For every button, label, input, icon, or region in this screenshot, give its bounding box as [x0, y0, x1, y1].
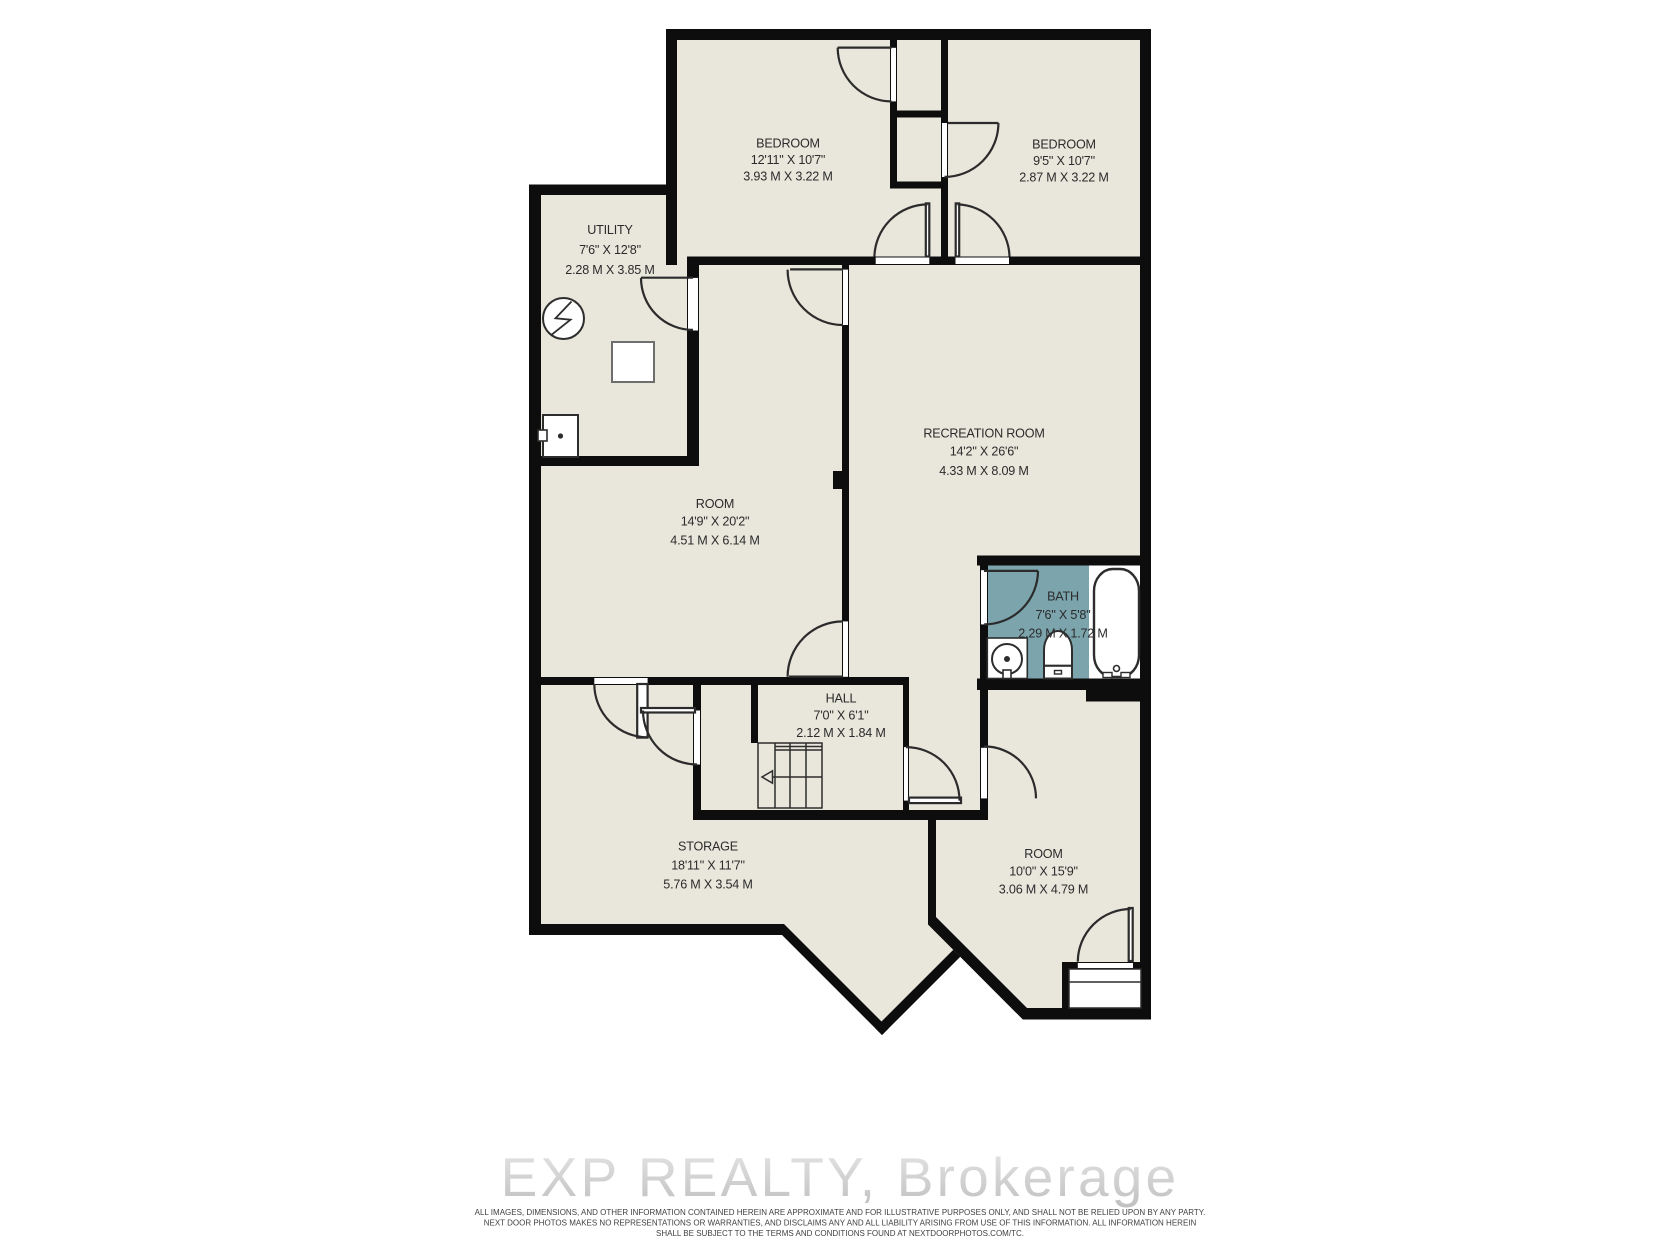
svg-text:RECREATION ROOM: RECREATION ROOM — [923, 427, 1044, 441]
svg-text:BEDROOM: BEDROOM — [756, 137, 820, 151]
svg-text:EXP REALTY, Brokerage: EXP REALTY, Brokerage — [501, 1146, 1180, 1208]
svg-text:ALL IMAGES, DIMENSIONS, AND OT: ALL IMAGES, DIMENSIONS, AND OTHER INFORM… — [475, 1208, 1206, 1217]
svg-text:7'6" X 5'8": 7'6" X 5'8" — [1036, 608, 1091, 622]
svg-text:4.33 M X 8.09 M: 4.33 M X 8.09 M — [939, 464, 1028, 478]
svg-text:HALL: HALL — [826, 692, 857, 706]
svg-text:UTILITY: UTILITY — [587, 223, 633, 237]
svg-text:2.28 M X 3.85 M: 2.28 M X 3.85 M — [565, 263, 654, 277]
svg-text:3.06 M X 4.79 M: 3.06 M X 4.79 M — [999, 883, 1088, 897]
svg-text:10'0" X 15'9": 10'0" X 15'9" — [1009, 864, 1078, 878]
svg-text:NEXT DOOR PHOTOS MAKES NO REPR: NEXT DOOR PHOTOS MAKES NO REPRESENTATION… — [484, 1218, 1197, 1227]
svg-text:9'5" X 10'7": 9'5" X 10'7" — [1033, 154, 1095, 168]
svg-text:18'11" X 11'7": 18'11" X 11'7" — [671, 859, 745, 873]
svg-text:2.12 M X 1.84 M: 2.12 M X 1.84 M — [796, 726, 885, 740]
svg-text:12'11" X 10'7": 12'11" X 10'7" — [751, 153, 825, 167]
svg-text:BEDROOM: BEDROOM — [1032, 138, 1096, 152]
svg-text:4.51 M X 6.14 M: 4.51 M X 6.14 M — [670, 534, 759, 548]
svg-text:ROOM: ROOM — [1024, 847, 1062, 861]
svg-text:5.76 M X 3.54 M: 5.76 M X 3.54 M — [663, 878, 752, 892]
svg-text:7'0" X 6'1": 7'0" X 6'1" — [814, 709, 869, 723]
svg-text:7'6" X 12'8": 7'6" X 12'8" — [579, 243, 641, 257]
svg-text:14'9" X 20'2": 14'9" X 20'2" — [681, 515, 750, 529]
svg-text:2.29 M X 1.72 M: 2.29 M X 1.72 M — [1018, 627, 1107, 641]
svg-text:SHALL BE SUBJECT TO THE TERMS: SHALL BE SUBJECT TO THE TERMS AND CONDIT… — [656, 1229, 1024, 1238]
svg-text:STORAGE: STORAGE — [678, 840, 738, 854]
svg-text:3.93 M X 3.22 M: 3.93 M X 3.22 M — [743, 170, 832, 184]
svg-text:2.87 M X 3.22 M: 2.87 M X 3.22 M — [1019, 171, 1108, 185]
svg-text:ROOM: ROOM — [696, 497, 734, 511]
svg-text:BATH: BATH — [1047, 590, 1079, 604]
svg-text:14'2" X 26'6": 14'2" X 26'6" — [950, 445, 1019, 459]
